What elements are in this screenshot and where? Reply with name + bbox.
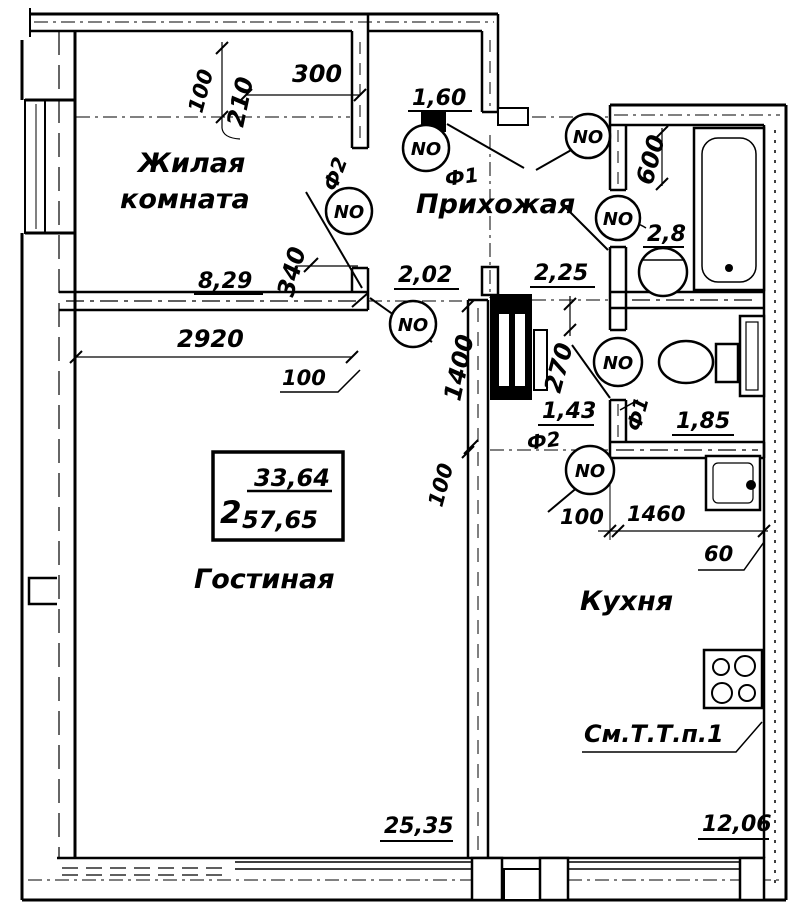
stamp-total-area: 57,65 [242, 506, 318, 534]
entry-threshold [498, 108, 528, 125]
dim-2920: 2920 [177, 325, 244, 353]
bottom-pier-1 [472, 858, 502, 900]
vent-duct [490, 294, 532, 400]
wall-stub-zhilaya [352, 268, 368, 292]
no-label: NO [411, 139, 441, 160]
kitchen-sink-drain [746, 480, 756, 490]
no-marker-7: NO [566, 446, 614, 494]
no-marker-1: NO [326, 188, 372, 234]
area-corridor: 2,25 [534, 261, 588, 286]
window-gostinaya [235, 862, 472, 869]
vent-slot-2 [515, 314, 525, 386]
area-bathroom: 2,8 [647, 222, 686, 247]
dim-1460: 1460 [627, 502, 685, 526]
dim-1400: 1400 [438, 332, 479, 403]
balcony-threshold [504, 869, 540, 900]
wall-bath-left-lower [610, 247, 626, 308]
no-marker-2: NO [403, 125, 449, 171]
dim-210: 210 [221, 74, 259, 129]
room-labels: Жилая комната Прихожая Гостиная Кухня См… [120, 148, 724, 748]
no-marker-5: NO [390, 301, 436, 347]
room-label-prihozhaya: Прихожая [416, 189, 575, 220]
no-marker-6: NO [594, 338, 642, 386]
area-kuhnya: 12,06 [702, 812, 772, 837]
dim-100b: 100 [282, 366, 326, 390]
bottom-pier-3 [740, 858, 764, 900]
dim-60: 60 [704, 542, 733, 566]
wall-bottom-fill [62, 868, 230, 875]
bathtub-inner [702, 138, 756, 282]
dim-600: 600 [631, 132, 671, 188]
radiator-bracket [29, 578, 57, 604]
dim-tick-100c [464, 440, 478, 454]
wc-cabinet [740, 316, 764, 396]
door-type-f2-kitchen: Ф2 [525, 426, 562, 454]
area-wc: 1,85 [676, 409, 730, 434]
door-leaf-vestibule [447, 124, 524, 168]
toilet-tank [716, 344, 738, 382]
dim-100d: 100 [560, 505, 604, 529]
room-label-gostinaya: Гостиная [194, 564, 335, 595]
room-label-zhilaya-2: комната [120, 184, 250, 215]
area-gostinaya: 25,35 [384, 814, 454, 839]
toilet-bowl [659, 341, 713, 383]
area-zhilaya: 8,29 [198, 269, 252, 294]
dim-300: 300 [292, 60, 342, 88]
floor-plan-page: NO NO NO NO NO NO NO Ф2 Ф1 Ф1 Ф2 [0, 0, 800, 918]
no-label: NO [603, 353, 633, 374]
room-label-kuhnya: Кухня [580, 586, 673, 617]
floor-plan-drawing: NO NO NO NO NO NO NO Ф2 Ф1 Ф1 Ф2 [0, 0, 800, 918]
stamp-room-count: 2 [220, 495, 242, 531]
no-label: NO [334, 202, 364, 223]
vent-slot-1 [499, 314, 509, 386]
no-label: NO [573, 127, 603, 148]
no-marker-4: NO [596, 196, 640, 240]
no-label: NO [603, 209, 633, 230]
dim-100a: 100 [184, 67, 219, 116]
wall-wc-left-upper [610, 308, 626, 330]
stamp-living-area: 33,64 [254, 464, 330, 492]
door-type-f1-vestibule: Ф1 [443, 162, 480, 190]
area-vestibule: 1,60 [412, 86, 466, 111]
bottom-pier-2 [540, 858, 568, 900]
window-zhilaya [25, 100, 45, 233]
bathroom-sink [639, 248, 687, 296]
area-prihozhaya: 2,02 [398, 263, 452, 288]
window-kuhnya [568, 862, 740, 869]
no-label: NO [398, 315, 428, 336]
apartment-stamp: 2 33,64 57,65 [213, 452, 343, 540]
no-label: NO [575, 461, 605, 482]
no-marker-3: NO [566, 114, 610, 158]
room-label-zhilaya-1: Жилая [136, 148, 245, 179]
dim-100c: 100 [424, 461, 459, 510]
bathtub-drain [725, 264, 733, 272]
area-closet: 1,43 [542, 399, 596, 424]
kitchen-note: См.Т.Т.п.1 [584, 720, 724, 748]
